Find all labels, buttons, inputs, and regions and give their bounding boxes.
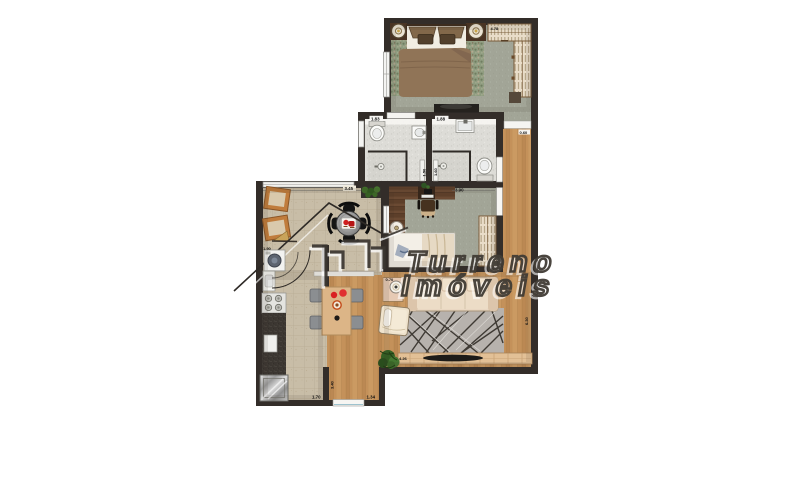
svg-text:1.34: 1.34 (367, 395, 376, 400)
svg-text:1.83: 1.83 (371, 116, 380, 121)
svg-text:1.60: 1.60 (433, 167, 438, 176)
svg-text:1.50: 1.50 (422, 168, 427, 177)
svg-text:3.40: 3.40 (330, 380, 335, 389)
svg-text:0.60: 0.60 (520, 130, 529, 135)
svg-text:4.26: 4.26 (399, 356, 408, 361)
svg-text:1.88: 1.88 (437, 116, 446, 121)
